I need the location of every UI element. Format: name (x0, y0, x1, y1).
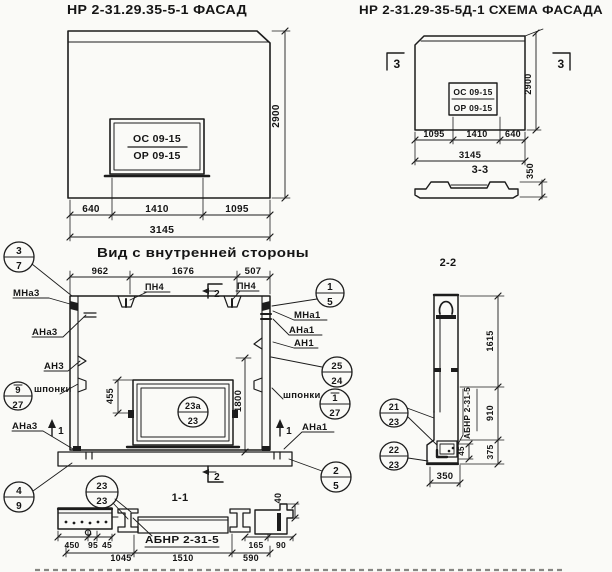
dim-45-s22: 45 (457, 446, 466, 456)
callout-top: 9 (15, 385, 21, 396)
panel-mark-label: АБНР 2-31-5 (145, 535, 219, 546)
dim-450: 450 (64, 540, 79, 550)
callout-top: 25 (331, 361, 343, 372)
callout-23a-23: 23а 23 (178, 397, 208, 427)
facade-schema: НР 2-31.29-35-5Д-1 СХЕМА ФАСАДА ОС 09-15… (359, 3, 603, 165)
an1-step-right (254, 338, 262, 349)
marker-arrowhead (48, 419, 56, 428)
dim-1800: 1800 (233, 390, 244, 412)
s22-insert-inner (440, 444, 454, 454)
callout-top: 4 (16, 486, 22, 497)
callout-bottom: 23 (389, 417, 400, 427)
callout-2-5: 2 5 (289, 459, 351, 492)
leader (33, 463, 72, 491)
callout-top: 21 (389, 402, 400, 412)
facade-dim-total: 3145 (150, 224, 175, 236)
facade-window-mark-bottom: ОР 09-15 (133, 150, 180, 162)
interior-panel-ribs (78, 296, 262, 450)
leader (407, 408, 437, 445)
facade-dim-height: 2900 (271, 104, 282, 128)
marker-arrowhead (276, 419, 284, 428)
callout-1-5: 1 5 (272, 279, 344, 308)
ana3b-label: АНа3 (12, 421, 38, 432)
facade-window-mark-top: ОС 09-15 (133, 133, 181, 145)
marker-label: 2 (214, 289, 220, 300)
callout-top: 3 (16, 246, 22, 257)
callout-bottom: 27 (12, 400, 23, 411)
callout-bottom: 23 (188, 416, 199, 426)
section-2-2: 2-2 АБНР 2-31-5 1615 910 375 45 350 2 (380, 257, 504, 487)
section3-marker-right-label: 3 (558, 57, 565, 71)
s22-lifting-loop (440, 302, 453, 314)
window-nub-left (128, 410, 134, 418)
s22-insert-dot2 (452, 447, 455, 450)
callout-bottom: 7 (16, 261, 22, 272)
facade-panel-outline (68, 31, 270, 198)
dim-165: 165 (248, 540, 263, 550)
strip-nub-right (262, 446, 270, 451)
sill-block-right (255, 504, 293, 534)
s22-loop-anchor (436, 315, 456, 319)
callout-top: 23а (185, 401, 202, 411)
an3-label: АН3 (44, 361, 64, 372)
callout-4-9: 4 9 (4, 463, 72, 512)
ana1b-label: АНа1 (302, 422, 328, 433)
shponka-notch-right (254, 378, 262, 392)
callout-1-27: 1 27 (320, 389, 350, 419)
sill-block-left (58, 508, 112, 529)
sill-block-right-bar (277, 513, 281, 531)
schema-dim-1410: 1410 (466, 129, 487, 139)
corner-plate-right (262, 301, 270, 311)
s22-column (434, 296, 458, 463)
leader (271, 357, 322, 367)
leader (289, 459, 322, 471)
facade-title: НР 2-31.29.35-5-1 ФАСАД (67, 2, 247, 17)
mna1-label: МНа1 (294, 310, 321, 321)
callout-bottom: 5 (333, 481, 339, 492)
dim-375: 375 (485, 444, 495, 459)
facade-dim-1095: 1095 (225, 204, 249, 215)
dim-590: 590 (243, 553, 259, 563)
section-3-3-ext (520, 182, 547, 197)
interior-dim-962: 962 (92, 266, 109, 277)
dim-1510: 1510 (172, 553, 193, 563)
leader (408, 458, 428, 461)
callout-21-23: 21 23 (380, 399, 437, 445)
shponki-left-label: шпонки (34, 384, 72, 395)
interior-dim-1676: 1676 (172, 266, 194, 277)
callout-top: 22 (389, 445, 400, 455)
rebar-dots (65, 521, 108, 525)
marker-arrowhead (202, 288, 209, 294)
s22-insert-corner (437, 450, 447, 457)
schema-window-mark-bottom: ОР 09-15 (454, 103, 493, 113)
section-3-3: 3-3 350 (415, 163, 547, 200)
an1-label: АН1 (294, 338, 314, 349)
leader (272, 299, 317, 306)
s22-lower-block (427, 412, 458, 463)
section3-marker-left-label: 3 (394, 57, 401, 71)
shponki-right-leader (272, 388, 283, 399)
strip-nub-left (73, 446, 81, 451)
callout-bottom: 23 (96, 496, 107, 507)
mna3-label: МНа3 (13, 288, 40, 299)
marker-label: 2 (214, 472, 220, 483)
callout-top: 2 (333, 466, 339, 477)
callout-22-23: 22 23 (380, 442, 428, 470)
interior-bottom-strip (58, 452, 292, 466)
pn4-right-label: ПН4 (237, 281, 256, 291)
interior-dim-507: 507 (245, 266, 262, 277)
strip-ticks (86, 452, 280, 459)
callout-bottom: 5 (327, 297, 333, 308)
dim-910: 910 (485, 405, 495, 421)
callout-top: 1 (332, 393, 338, 404)
dim-1045: 1045 (110, 553, 131, 563)
section-1-1: 1-1 23 23 40 АБНР 2-31-5 (55, 476, 299, 563)
schema-title: НР 2-31.29-35-5Д-1 СХЕМА ФАСАДА (359, 3, 603, 17)
pn4-left-label: ПН4 (145, 282, 164, 292)
facade-elevation: НР 2-31.29.35-5-1 ФАСАД ОС 09-15 ОР 09-1… (67, 2, 290, 241)
shponki-right-label: шпонки (283, 390, 321, 401)
schema-ext-lines (415, 29, 543, 165)
section1-marker-right: 1 (276, 419, 292, 437)
s22-plate-left (434, 368, 441, 372)
schema-dim-640: 640 (505, 129, 521, 139)
an3-step-left (78, 356, 86, 366)
shponka-notch-left (78, 378, 86, 392)
dim-40: 40 (273, 493, 283, 504)
marker-arrowhead (202, 469, 209, 475)
callout-top: 1 (327, 282, 333, 293)
section2-marker-bottom: 2 (202, 466, 223, 483)
callout-25-24: 25 24 (271, 357, 352, 387)
section-3-3-profile (415, 182, 518, 198)
interior-panel-outline (70, 296, 270, 450)
schema-dim-ticks (412, 30, 539, 164)
ana1-label: АНа1 (289, 325, 315, 336)
ana3-label: АНа3 (32, 327, 58, 338)
interior-title: Вид с внутренней стороны (97, 246, 309, 260)
callout-top: 23 (96, 481, 107, 492)
mid-bar (138, 517, 228, 533)
schema-dim-1095: 1095 (423, 129, 444, 139)
section-3-3-title: 3-3 (472, 164, 489, 176)
schema-dim-height: 2900 (523, 73, 533, 94)
callout-bottom: 23 (389, 460, 400, 470)
dim-90: 90 (276, 540, 286, 550)
interior-view: Вид с внутренней стороны 3 7 962 1676 50… (4, 242, 352, 512)
callout-bottom: 24 (331, 376, 343, 387)
section-3-3-thickness: 350 (525, 163, 535, 179)
corner-plate-left (70, 301, 78, 311)
dim-1615: 1615 (485, 330, 495, 351)
dim-455: 455 (105, 388, 115, 404)
marker-label: 1 (286, 426, 292, 437)
callout-bottom: 9 (16, 501, 22, 512)
section-2-2-title: 2-2 (440, 257, 457, 269)
schema-dim-total: 3145 (459, 150, 482, 161)
section2-marker-top: 2 (202, 284, 222, 300)
facade-dim-640: 640 (82, 204, 100, 215)
dim-95: 95 (88, 540, 98, 550)
section-1-1-title: 1-1 (172, 492, 189, 504)
callout-bottom: 27 (329, 408, 340, 419)
dim-350: 350 (437, 471, 454, 482)
facade-dim-1410: 1410 (145, 204, 169, 215)
section1-marker-left: 1 (48, 419, 64, 437)
schema-window-mark-top: ОС 09-15 (453, 87, 492, 97)
s22-insert-dot1 (448, 450, 451, 453)
s22-plate-right (451, 368, 458, 372)
drawing-sheet: НР 2-31.29.35-5-1 ФАСАД ОС 09-15 ОР 09-1… (0, 0, 612, 572)
dim-45: 45 (102, 540, 112, 550)
dim-455-ext (113, 380, 133, 413)
tavr-beam-right (230, 509, 250, 532)
s22-panel-mark: АБНР 2-31-5 (462, 387, 472, 439)
callout-9-27: 9 27 (4, 382, 32, 411)
marker-label: 1 (58, 426, 64, 437)
